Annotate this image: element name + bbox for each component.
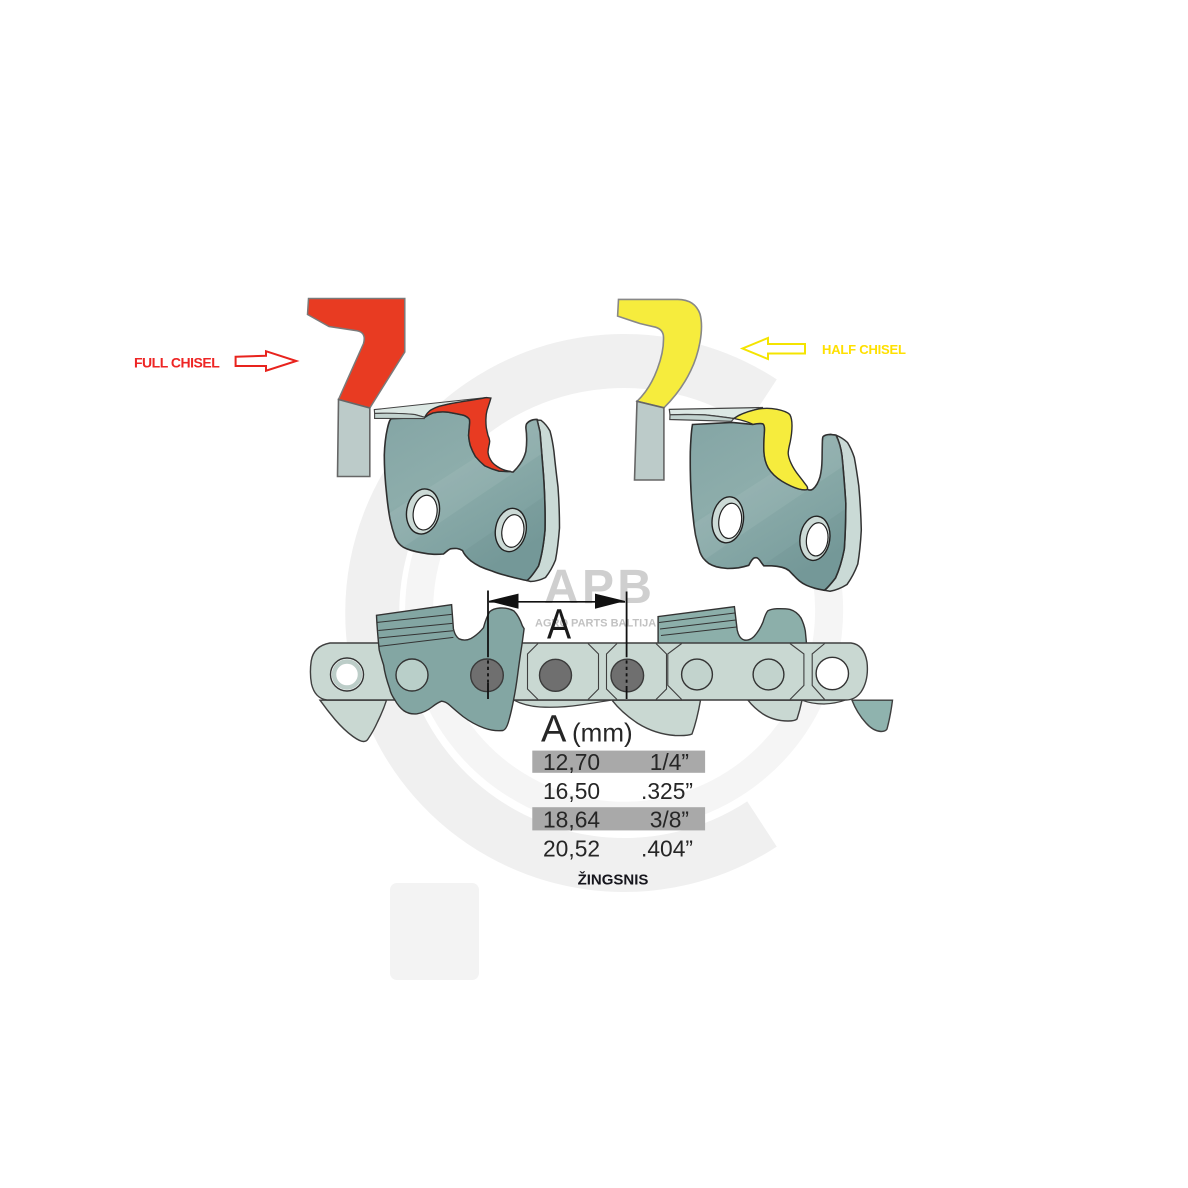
- svg-text:12,70: 12,70: [543, 749, 600, 775]
- svg-text:1/4”: 1/4”: [650, 749, 689, 775]
- svg-text:(mm): (mm): [572, 718, 633, 748]
- svg-text:18,64: 18,64: [543, 806, 600, 832]
- svg-text:FULL CHISEL: FULL CHISEL: [134, 355, 220, 371]
- svg-text:HALF CHISEL: HALF CHISEL: [822, 342, 906, 357]
- svg-text:A: A: [541, 709, 567, 751]
- svg-text:ŽINGSNIS: ŽINGSNIS: [578, 871, 649, 889]
- svg-text:16,50: 16,50: [543, 778, 600, 804]
- svg-text:.325”: .325”: [641, 778, 693, 804]
- svg-text:A: A: [547, 601, 572, 648]
- svg-text:3/8”: 3/8”: [650, 806, 689, 832]
- svg-text:20,52: 20,52: [543, 836, 600, 862]
- svg-text:.404”: .404”: [641, 836, 693, 862]
